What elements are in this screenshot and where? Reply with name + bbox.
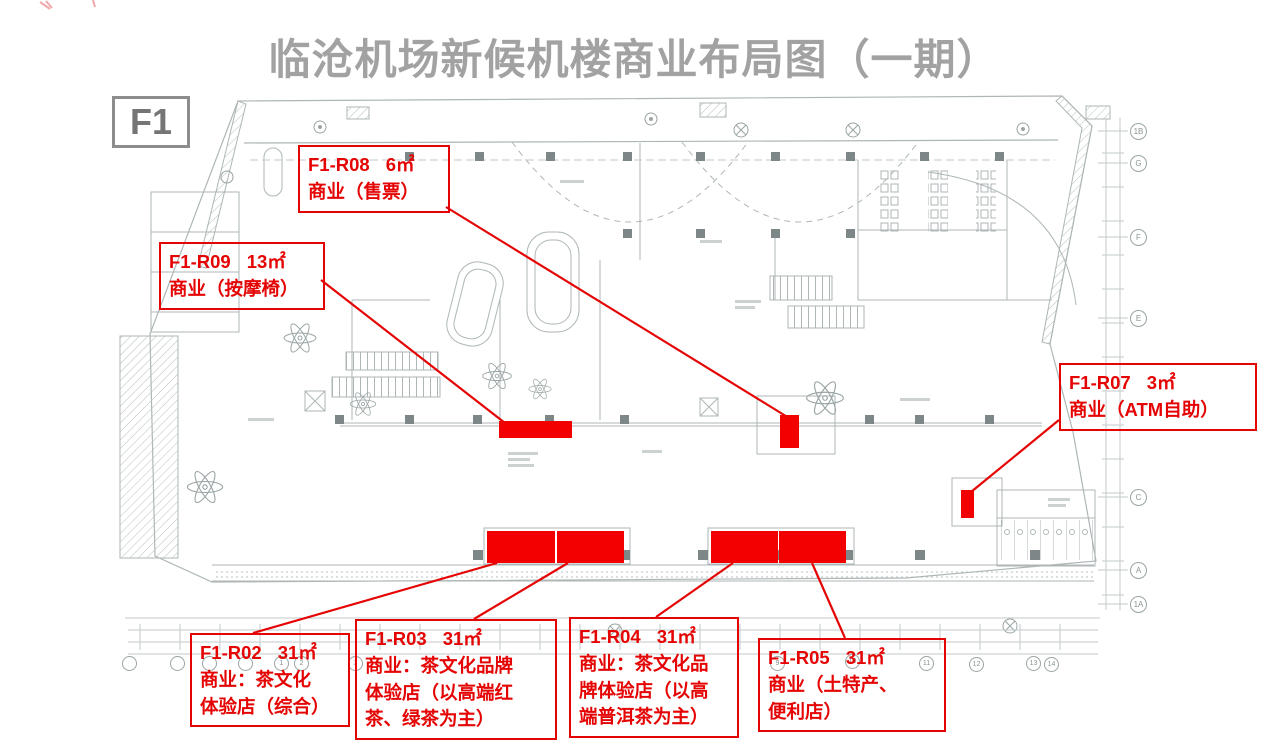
grid-bubble-bottom bbox=[170, 656, 185, 671]
shop-desc: 商业（售票） bbox=[308, 179, 440, 206]
shop-code: F1-R03 bbox=[365, 626, 427, 653]
shop-code: F1-R02 bbox=[200, 640, 262, 667]
shop-area: 31㎡ bbox=[657, 624, 696, 651]
shop-code: F1-R08 bbox=[308, 152, 370, 179]
floor-badge: F1 bbox=[112, 96, 190, 148]
grid-bubble-bottom bbox=[122, 656, 137, 671]
shop-desc: 商业（ATM自助） bbox=[1069, 397, 1247, 424]
leader-f1-r07 bbox=[971, 420, 1059, 492]
grid-bubble-right: 1B bbox=[1130, 123, 1147, 140]
callout-f1-r02: F1-R0231㎡ 商业：茶文化 体验店（综合） bbox=[190, 633, 350, 727]
shop-area: 3㎡ bbox=[1147, 370, 1176, 397]
page-title: 临沧机场新候机楼商业布局图（一期） bbox=[0, 26, 1268, 87]
shop-desc: 商业（按摩椅） bbox=[169, 276, 315, 303]
grid-bubble-right: 1A bbox=[1130, 596, 1147, 613]
shop-region-f1-r07-atm bbox=[961, 490, 974, 518]
grid-bubble-right: G bbox=[1130, 155, 1147, 172]
shop-region-f1-r09-massage-chairs bbox=[499, 421, 572, 438]
shop-code: F1-R04 bbox=[579, 624, 641, 651]
callout-f1-r03: F1-R0331㎡ 商业：茶文化品牌 体验店（以高端红 茶、绿茶为主） bbox=[355, 619, 557, 740]
shop-desc: 商业：茶文化品牌 bbox=[365, 653, 547, 680]
shop-desc: 牌体验店（以高 bbox=[579, 678, 729, 705]
shop-regions bbox=[487, 415, 974, 563]
grid-bubble-right: E bbox=[1130, 310, 1147, 327]
shop-area: 31㎡ bbox=[846, 645, 885, 672]
shop-code: F1-R05 bbox=[768, 645, 830, 672]
shop-region-f1-r04 bbox=[711, 531, 778, 563]
shop-desc: 体验店（综合） bbox=[200, 694, 340, 721]
leader-f1-r08 bbox=[446, 207, 789, 418]
shop-region-f1-r02 bbox=[487, 531, 555, 563]
callout-f1-r09: F1-R0913㎡ 商业（按摩椅） bbox=[159, 242, 325, 310]
grid-bubble-right: C bbox=[1130, 489, 1147, 506]
shop-area: 6㎡ bbox=[386, 152, 415, 179]
shop-region-f1-r05 bbox=[779, 531, 846, 563]
shop-desc: 商业（土特产、 bbox=[768, 672, 936, 699]
shop-desc: 商业：茶文化 bbox=[200, 667, 340, 694]
callout-f1-r08: F1-R086㎡ 商业（售票） bbox=[298, 145, 450, 213]
shop-desc: 体验店（以高端红 bbox=[365, 680, 547, 707]
shop-area: 31㎡ bbox=[278, 640, 317, 667]
building-outline bbox=[150, 96, 1096, 582]
shop-desc: 茶、绿茶为主） bbox=[365, 706, 547, 733]
shop-code: F1-R09 bbox=[169, 249, 231, 276]
shop-desc: 商业：茶文化品 bbox=[579, 651, 729, 678]
shop-region-f1-r08-ticketing bbox=[780, 415, 799, 448]
shop-area: 31㎡ bbox=[443, 626, 482, 653]
callout-f1-r07: F1-R073㎡ 商业（ATM自助） bbox=[1059, 363, 1257, 431]
plant-symbols bbox=[187, 322, 843, 505]
grid-bubble-right: A bbox=[1130, 562, 1147, 579]
grid-bubble-right: F bbox=[1130, 229, 1147, 246]
grid-bubble-bottom: 13 bbox=[1026, 656, 1041, 671]
shop-desc: 端普洱茶为主） bbox=[579, 704, 729, 731]
callout-f1-r05: F1-R0531㎡ 商业（土特产、 便利店） bbox=[758, 638, 946, 732]
callout-f1-r04: F1-R0431㎡ 商业：茶文化品 牌体验店（以高 端普洱茶为主） bbox=[569, 617, 739, 738]
shop-desc: 便利店） bbox=[768, 699, 936, 726]
grid-bubble-bottom: 14 bbox=[1044, 657, 1059, 672]
shop-code: F1-R07 bbox=[1069, 370, 1131, 397]
handwriting-mark bbox=[40, 0, 95, 9]
shop-region-f1-r03 bbox=[557, 531, 624, 563]
shop-area: 13㎡ bbox=[247, 249, 286, 276]
grid-bubble-bottom: 12 bbox=[969, 657, 984, 672]
